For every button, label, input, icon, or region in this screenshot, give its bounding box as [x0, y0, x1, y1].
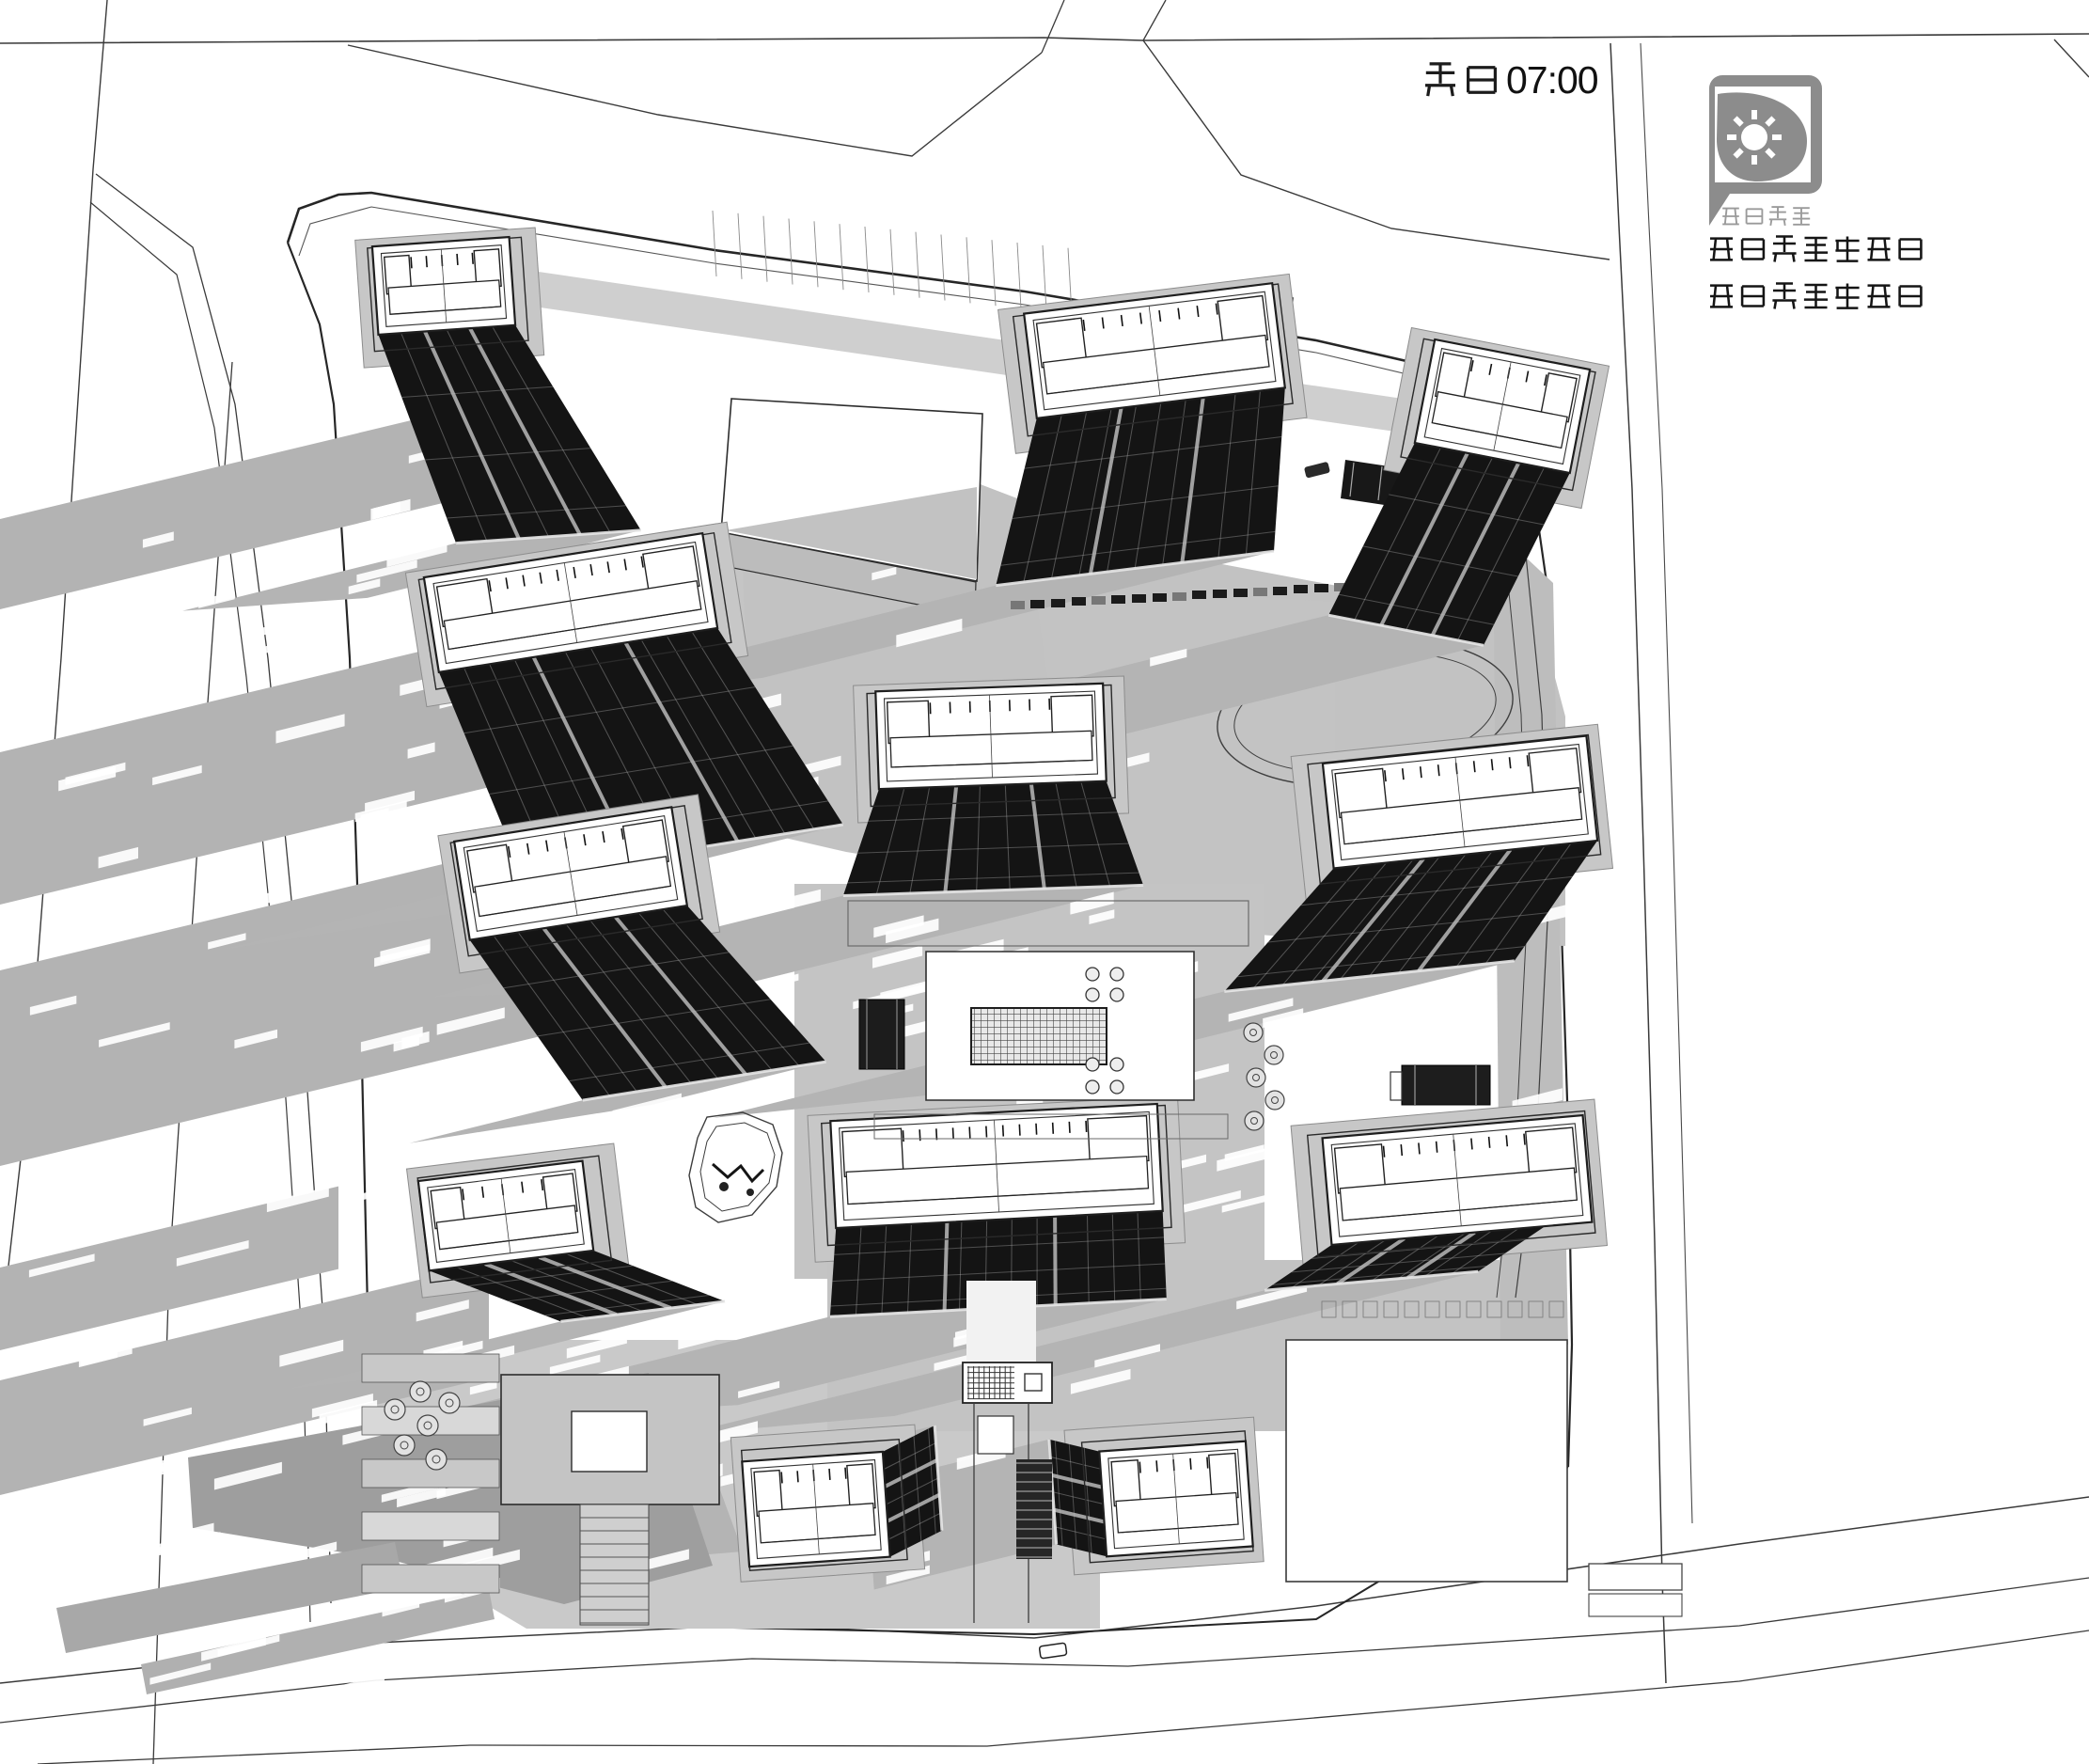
svg-text:07:00: 07:00 [1506, 58, 1598, 102]
